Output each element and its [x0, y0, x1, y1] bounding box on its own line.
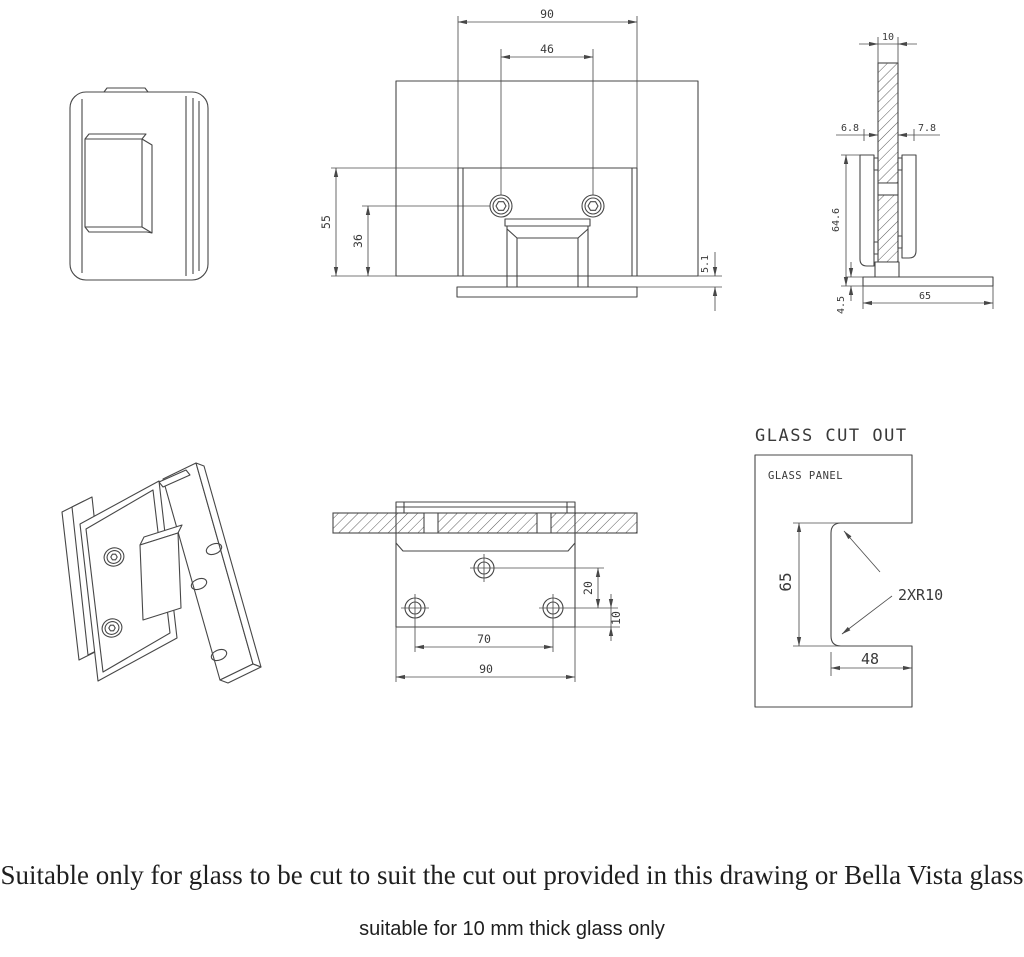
clamp-plate-right [902, 155, 916, 258]
dim-side-offset-right: 7.8 [898, 123, 940, 141]
base-plate-front [457, 287, 637, 297]
dim-front-height: 55 [319, 168, 336, 276]
dim-front-base-gap: 5.1 [700, 252, 715, 311]
hinge-center-block [85, 134, 152, 233]
glass-panel-label: GLASS PANEL [768, 470, 843, 482]
dim-label: 2XR10 [898, 586, 943, 604]
hinge-knuckle [505, 219, 590, 287]
screw-left [490, 195, 512, 217]
dim-label: 55 [319, 215, 333, 229]
dim-side-base-width: 65 [863, 286, 993, 309]
dim-label: 7.8 [918, 123, 936, 134]
dim-side-height: 64.6 [831, 155, 863, 286]
dim-front-hole-spacing: 46 [501, 42, 593, 57]
dim-label: 48 [861, 650, 879, 668]
dim-label: 10 [882, 32, 894, 43]
clamp-chamfer [396, 543, 575, 551]
glass-panel-outline [396, 81, 698, 276]
pivot-post [875, 262, 899, 277]
dim-side-glass-thickness: 10 [859, 32, 917, 63]
dim-label: 10 [609, 611, 623, 625]
hole-bottom-left [401, 594, 429, 622]
plan-view: 20 10 70 90 [333, 502, 637, 682]
base-plate-side [863, 277, 993, 286]
glass-section-plan [333, 513, 637, 533]
hinge-top-tab [104, 88, 148, 92]
dim-cutout-depth: 48 [831, 650, 912, 676]
dim-plan-top-hole-offset: 20 [581, 568, 598, 608]
dim-label: 90 [540, 7, 554, 21]
dim-label: 90 [479, 662, 493, 676]
dim-front-hole-height: 36 [351, 206, 368, 276]
note-suitability: Suitable only for glass to be cut to sui… [0, 860, 1024, 891]
dim-label: 65 [776, 572, 795, 591]
dim-side-base-thickness: 4.5 [836, 262, 863, 314]
radius-callout: 2XR10 [842, 531, 943, 634]
dim-label: 70 [477, 632, 491, 646]
glass-cutout-view: GLASS CUT OUT GLASS PANEL 65 48 2XR10 [755, 426, 943, 707]
dim-label: 20 [581, 581, 595, 595]
hinge-knuckle-iso [140, 525, 182, 620]
cutout-title: GLASS CUT OUT [755, 426, 908, 446]
dim-plan-bottom-hole-offset: 10 [609, 594, 623, 641]
dim-label: 4.5 [836, 296, 847, 314]
side-view: 10 6.8 7.8 64.6 4.5 [831, 32, 993, 314]
note-glass-thickness: suitable for 10 mm thick glass only [0, 918, 1024, 941]
dim-plan-width: 90 [396, 662, 575, 677]
dim-label: 5.1 [700, 255, 711, 273]
dim-plan-hole-spacing: 70 [415, 632, 553, 647]
iso-view-open-hinge [62, 463, 261, 683]
dim-label: 36 [351, 234, 365, 248]
hole-bottom-right [539, 594, 567, 622]
dim-label: 65 [919, 291, 931, 302]
iso-view-closed-hinge [70, 88, 208, 280]
dim-front-width: 90 [458, 7, 637, 22]
technical-drawing-page: 90 46 55 36 5.1 [0, 0, 1024, 957]
drawing-sheet: 90 46 55 36 5.1 [0, 0, 1024, 957]
hole-top-center [470, 554, 498, 582]
screw-right [582, 195, 604, 217]
dim-label: 64.6 [831, 208, 842, 232]
dim-label: 6.8 [841, 123, 859, 134]
glass-section [878, 63, 898, 262]
front-view: 90 46 55 36 5.1 [319, 7, 722, 311]
dim-side-offset-left: 6.8 [836, 123, 878, 141]
dim-label: 46 [540, 42, 554, 56]
clamp-plate-left [860, 155, 874, 266]
